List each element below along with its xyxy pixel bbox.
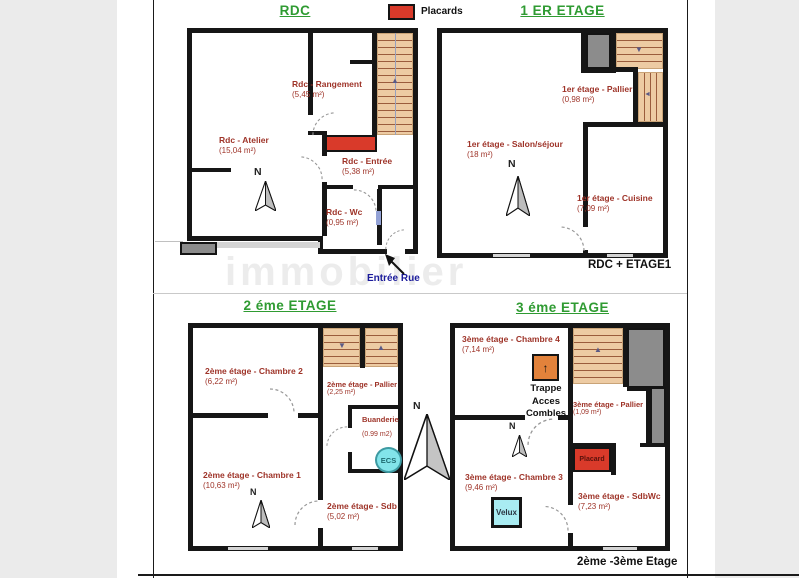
street-entrance-arrow-icon xyxy=(381,252,407,276)
door-arc xyxy=(312,112,336,136)
rdc-window-marker xyxy=(376,211,381,225)
room-area: (7,09 m²) xyxy=(577,204,653,214)
rdc-wall xyxy=(350,60,372,64)
e3-attic-hatch: ↑ xyxy=(532,354,559,381)
stair-direction-arrow: ◄ xyxy=(644,91,651,99)
e2-wall xyxy=(398,323,403,551)
e3-placard-closet: Placard xyxy=(573,447,611,472)
door-arc xyxy=(268,388,296,414)
e2-wall xyxy=(298,413,323,418)
room-label-rdc-rangement: Rdc - Rangement (5,45 m²) xyxy=(292,79,362,100)
room-label-e2-buanderie: Buanderie (0.99 m2) xyxy=(362,415,399,440)
north-arrow-icon xyxy=(506,176,530,216)
north-arrow-icon xyxy=(512,435,527,457)
e2-wall xyxy=(188,323,193,551)
e3-wall xyxy=(450,415,525,420)
trappe-line: Trappe xyxy=(518,383,574,396)
e3-wall xyxy=(450,546,670,551)
floor-title-etage2: 2 éme ETAGE xyxy=(215,298,365,313)
room-area: (7,14 m²) xyxy=(462,345,560,355)
e3-window-sill xyxy=(603,547,637,550)
e1-window-sill xyxy=(607,254,633,257)
room-label-e2-chambre2: 2ème étage - Chambre 2 (6,22 m²) xyxy=(205,366,303,387)
e3-staircase xyxy=(573,328,623,384)
north-arrow-icon xyxy=(404,414,450,480)
stair-direction-arrow: ▲ xyxy=(377,344,385,352)
e3-wall xyxy=(646,387,650,445)
rdc-wall xyxy=(187,28,192,241)
e3-velux-window: Velux xyxy=(491,497,522,528)
floor-title-rdc: RDC xyxy=(240,3,350,18)
e1-wall xyxy=(583,122,668,127)
room-name: 2ème étage - Pallier xyxy=(327,380,397,389)
e1-wall xyxy=(437,28,442,258)
footer-etage2-etage3: 2ème -3ème Etage xyxy=(577,556,677,568)
room-label-e3-sdbwc: 3ème étage - SdbWc (7,23 m²) xyxy=(578,491,661,512)
rdc-wall xyxy=(308,28,313,115)
e1-window-sill xyxy=(493,254,530,257)
e2-window-sill xyxy=(352,547,378,550)
e3-sloped-ceiling-block xyxy=(650,387,666,445)
room-area: (5,38 m²) xyxy=(342,167,392,177)
door-arc xyxy=(299,156,323,180)
door-arc xyxy=(559,226,585,252)
stair-direction-arrow: ▼ xyxy=(338,342,346,350)
room-label-e1-pallier: 1er étage - Pallier (0,98 m²) xyxy=(562,84,632,105)
e3-wall xyxy=(568,533,573,551)
trappe-line: Acces xyxy=(518,396,574,409)
legend-placard-swatch xyxy=(388,4,415,20)
watermark: immobilier xyxy=(225,250,467,295)
north-label: N xyxy=(508,158,516,170)
room-label-e3-chambre4: 3ème étage - Chambre 4 (7,14 m²) xyxy=(462,334,560,355)
north-arrow-icon xyxy=(252,500,270,528)
room-name: 1er étage - Pallier xyxy=(562,84,632,95)
room-area: (0,95 m²) xyxy=(326,218,362,228)
rdc-placard-closet xyxy=(325,135,377,152)
stair-direction-arrow: ▲ xyxy=(391,77,399,85)
page-left-rule xyxy=(153,0,154,578)
e3-attic-hatch-label: Trappe Acces Combles xyxy=(518,383,574,421)
north-label: N xyxy=(413,400,421,412)
rdc-wall xyxy=(187,168,231,172)
room-label-e3-chambre3: 3ème étage - Chambre 3 (9,46 m²) xyxy=(465,472,563,493)
room-label-e2-sdb: 2ème étage - Sdb (5,02 m²) xyxy=(327,501,397,522)
room-name: Buanderie xyxy=(362,415,399,424)
room-label-rdc-wc: Rdc - Wc (0,95 m²) xyxy=(326,207,362,228)
e3-wall xyxy=(611,443,616,475)
e3-wall xyxy=(640,443,666,447)
e3-sloped-ceiling-block xyxy=(627,328,665,388)
room-name: 3ème étage - Chambre 4 xyxy=(462,334,560,345)
room-name: 2ème étage - Sdb xyxy=(327,501,397,512)
footer-rdc-etage1: RDC + ETAGE1 xyxy=(588,259,671,271)
room-label-e3-pallier: 3ème étage - Pallier (1,09 m²) xyxy=(573,400,643,418)
room-area: (15,04 m²) xyxy=(219,146,269,156)
room-label-e1-cuisine: 1er étage - Cuisine (7,09 m²) xyxy=(577,193,653,214)
room-name: 3ème étage - Chambre 3 xyxy=(465,472,563,483)
north-label: N xyxy=(250,487,257,497)
room-area: (1,09 m²) xyxy=(573,409,643,418)
room-area: (9,46 m²) xyxy=(465,483,563,493)
room-label-rdc-entree: Rdc - Entrée (5,38 m²) xyxy=(342,156,392,177)
e3-wall xyxy=(450,323,455,551)
rdc-wall xyxy=(413,28,418,254)
room-name: 1er étage - Salon/séjour xyxy=(467,139,563,150)
rdc-wall xyxy=(378,185,413,189)
room-name: 3ème étage - SdbWc xyxy=(578,491,661,502)
room-area: (0,98 m²) xyxy=(562,95,632,105)
room-name: 2ème étage - Chambre 1 xyxy=(203,470,301,481)
rdc-wall xyxy=(322,249,387,254)
stair-direction-arrow: ▼ xyxy=(635,46,643,54)
room-name: 2ème étage - Chambre 2 xyxy=(205,366,303,377)
e1-duct-block xyxy=(586,33,611,69)
room-label-rdc-atelier: Rdc - Atelier (15,04 m²) xyxy=(219,135,269,156)
room-area: (5,45 m²) xyxy=(292,90,362,100)
door-arc xyxy=(543,505,569,532)
room-name: Rdc - Wc xyxy=(326,207,362,218)
e2-wall xyxy=(348,409,352,428)
page-right-rule xyxy=(687,0,688,578)
e1-wall xyxy=(663,28,668,258)
floor-title-etage1: 1 ER ETAGE xyxy=(495,3,630,18)
rdc-wall xyxy=(322,185,353,189)
page-bottom-rule xyxy=(138,574,799,576)
floor-title-etage3: 3 éme ETAGE xyxy=(490,300,635,315)
e2-wall xyxy=(348,405,403,409)
rdc-wall xyxy=(187,236,323,241)
legend-placards-label: Placards xyxy=(421,6,463,17)
rdc-shopfront-sill xyxy=(217,242,320,248)
room-area: (2,25 m²) xyxy=(327,389,397,398)
e2-ecs-tank: ECS xyxy=(375,447,402,473)
room-name: Rdc - Rangement xyxy=(292,79,362,90)
north-label: N xyxy=(509,421,516,431)
room-label-e2-pallier: 2ème étage - Pallier (2,25 m²) xyxy=(327,380,397,398)
north-label: N xyxy=(254,166,262,178)
room-name: Rdc - Atelier xyxy=(219,135,269,146)
room-label-e1-salon: 1er étage - Salon/séjour (18 m²) xyxy=(467,139,563,160)
door-arc xyxy=(527,418,555,446)
e1-wall xyxy=(437,253,668,258)
e2-wall xyxy=(318,528,323,551)
e2-window-sill xyxy=(228,547,268,550)
room-name: 1er étage - Cuisine xyxy=(577,193,653,204)
room-area: (7,23 m²) xyxy=(578,502,661,512)
door-arc xyxy=(326,426,348,448)
floorplan-document: immobilier RDC Placards 1 ER ETAGE 2 éme… xyxy=(0,0,799,578)
door-arc xyxy=(294,500,320,526)
room-area: (6,22 m²) xyxy=(205,377,303,387)
door-arc xyxy=(385,229,406,250)
room-area: (5,02 m²) xyxy=(327,512,397,522)
north-arrow-icon xyxy=(255,181,276,211)
stair-direction-arrow: ▲ xyxy=(594,346,602,354)
room-name: Rdc - Entrée xyxy=(342,156,392,167)
e2-wall xyxy=(188,413,268,418)
room-area: (0.99 m2) xyxy=(362,431,399,440)
ground-line xyxy=(155,241,183,242)
room-name: 3ème étage - Pallier xyxy=(573,400,643,409)
rdc-doorstep xyxy=(180,242,217,255)
